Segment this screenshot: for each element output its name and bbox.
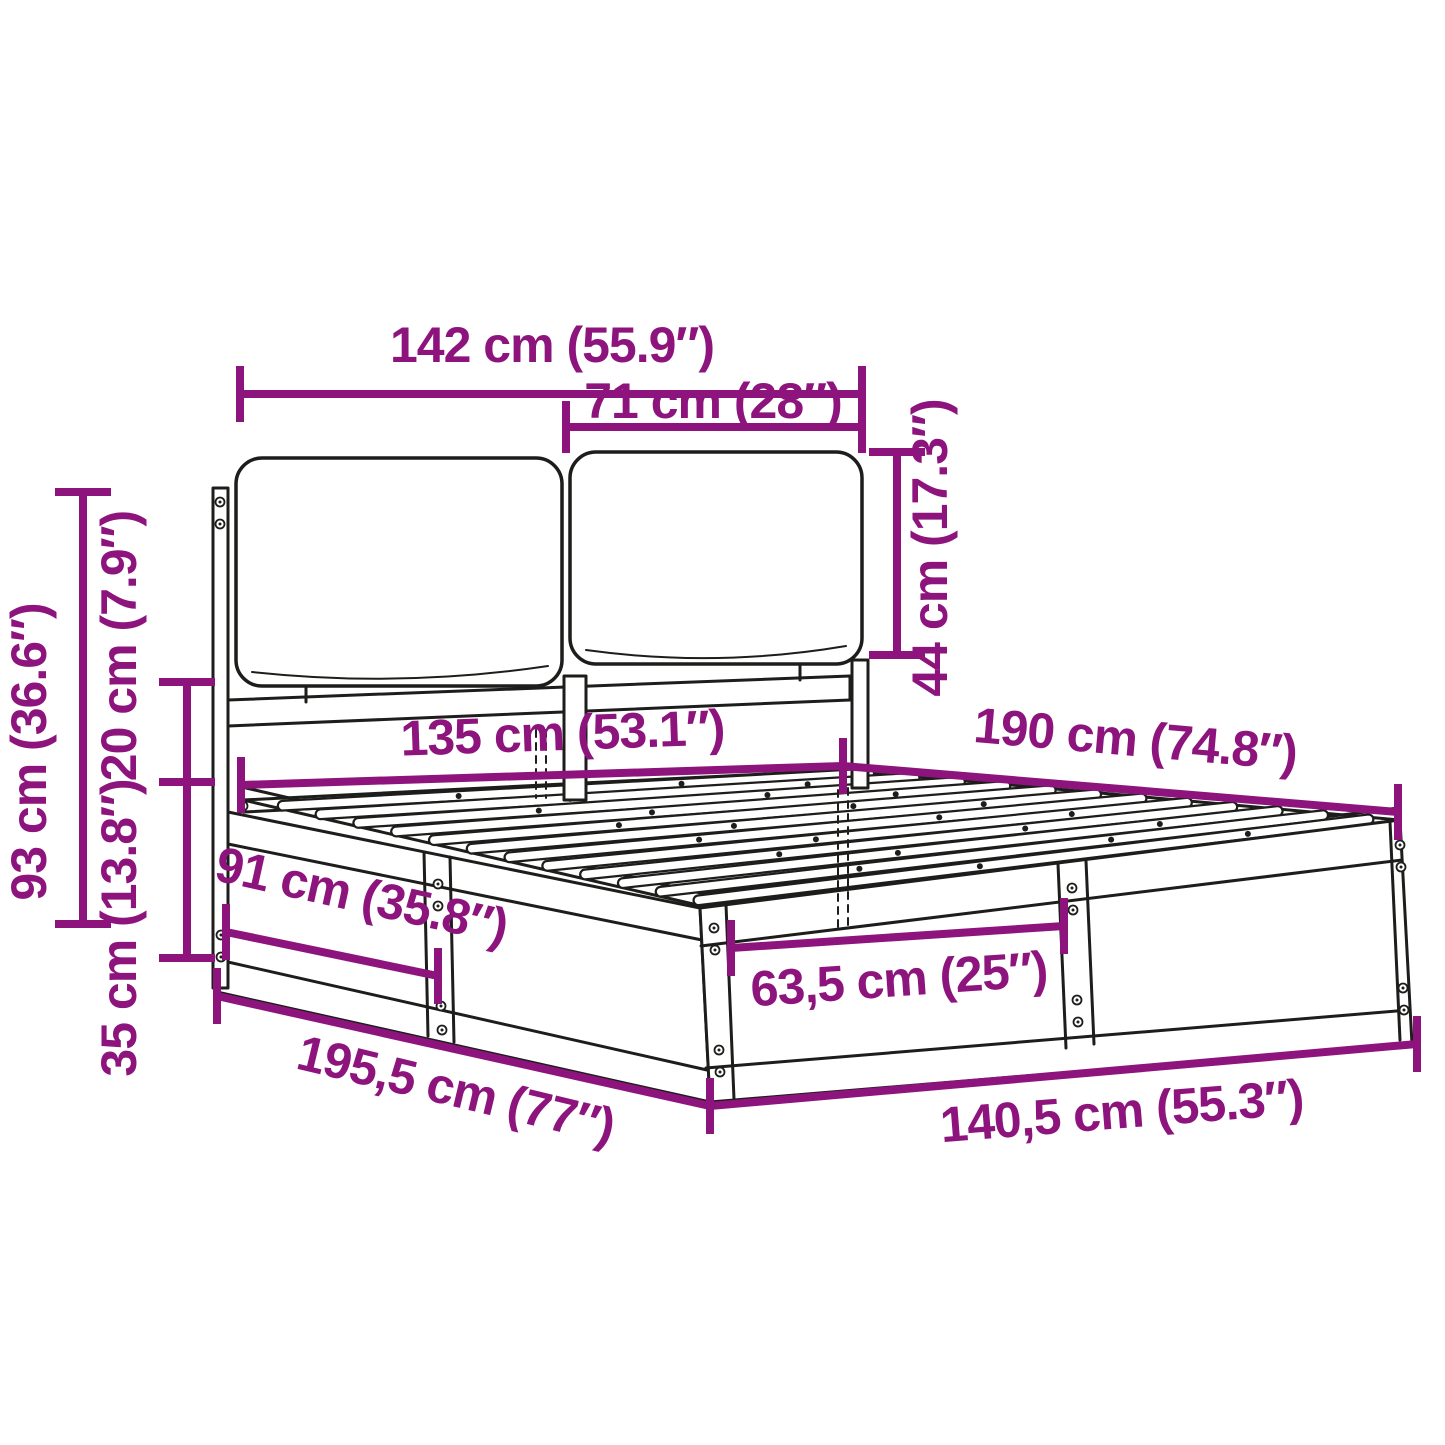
screw-center-dot xyxy=(713,927,716,930)
label-inner-width: 135 cm (53.1″) xyxy=(400,699,726,766)
label-frame-side-height: 35 cm (13.8″) xyxy=(91,779,147,1076)
screw-center-dot xyxy=(719,1071,722,1074)
slat-clip-dot xyxy=(850,803,856,809)
slat-clip-dot xyxy=(456,793,462,799)
screw-center-dot xyxy=(440,1005,443,1008)
slat-clip-dot xyxy=(731,823,737,829)
bed-frame-diagram-canvas: 142 cm (55.9″) 71 cm (28″) 44 cm (17.3″)… xyxy=(0,0,1445,1445)
screw-center-dot xyxy=(718,1049,721,1052)
screw-center-dot xyxy=(1072,909,1075,912)
slat-clip-dot xyxy=(1245,831,1251,837)
slat-clip-dot xyxy=(536,808,542,814)
label-headboard-height: 93 cm (36.6″) xyxy=(1,603,57,900)
screw-center-dot xyxy=(714,949,717,952)
screw-center-dot xyxy=(1076,999,1079,1002)
label-inner-length: 190 cm (74.8″) xyxy=(972,697,1300,781)
slat-clip-dot xyxy=(936,814,942,820)
screw-center-dot xyxy=(1077,1021,1080,1024)
slat-clip-dot xyxy=(813,836,819,842)
slat-clip-dot xyxy=(764,792,770,798)
headboard-cushion-right xyxy=(570,452,862,664)
screw-center-dot xyxy=(219,523,222,526)
slat-clip-dot xyxy=(856,866,862,872)
slat-clip-dot xyxy=(1108,837,1114,843)
label-headboard-total-width: 142 cm (55.9″) xyxy=(390,317,714,373)
dimension-frame-side-height xyxy=(159,782,215,958)
label-cushion-width: 71 cm (28″) xyxy=(584,373,842,429)
slat-clip-dot xyxy=(977,863,983,869)
screw-center-dot xyxy=(219,501,222,504)
slat-clip-dot xyxy=(1022,825,1028,831)
screw-center-dot xyxy=(1071,887,1074,890)
slat-clip-dot xyxy=(895,850,901,856)
screw-center-dot xyxy=(1399,844,1402,847)
label-gap-height: 20 cm (7.9″) xyxy=(91,511,147,781)
slat-clip-dot xyxy=(893,791,899,797)
dimension-diagram: 142 cm (55.9″) 71 cm (28″) 44 cm (17.3″)… xyxy=(0,0,1445,1445)
slat-clip-dot xyxy=(981,801,987,807)
slat-clip-dot xyxy=(776,851,782,857)
slat-clip-dot xyxy=(1069,811,1075,817)
screw-center-dot xyxy=(1400,866,1403,869)
headboard-cushion-left xyxy=(236,458,562,686)
slat-clip-dot xyxy=(616,822,622,828)
slat-clip-dot xyxy=(1157,821,1163,827)
screw-center-dot xyxy=(1403,1009,1406,1012)
label-cushion-height: 44 cm (17.3″) xyxy=(902,399,958,696)
screw-center-dot xyxy=(441,1029,444,1032)
slat-clip-dot xyxy=(696,837,702,843)
slat-clip-dot xyxy=(649,809,655,815)
screw-center-dot xyxy=(1402,987,1405,990)
dimension-gap-height xyxy=(159,682,215,782)
